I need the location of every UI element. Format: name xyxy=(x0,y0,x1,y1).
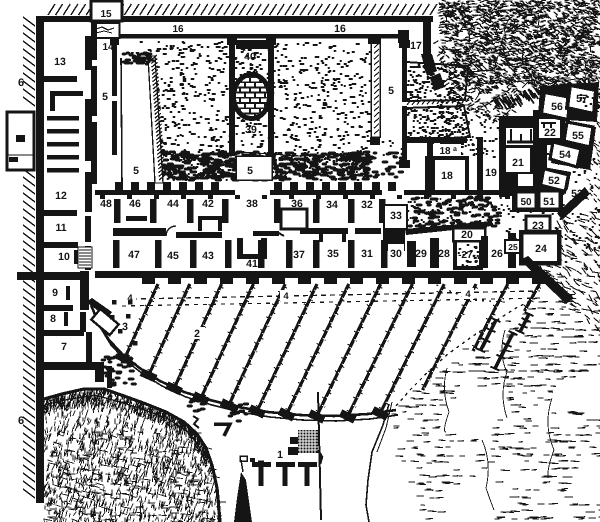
svg-text:38: 38 xyxy=(246,198,258,210)
svg-text:37: 37 xyxy=(293,249,305,261)
svg-text:4: 4 xyxy=(465,289,471,300)
svg-text:41: 41 xyxy=(246,258,258,270)
svg-text:30: 30 xyxy=(390,248,402,260)
svg-text:-27-: -27- xyxy=(458,250,476,261)
svg-text:1: 1 xyxy=(277,449,283,461)
svg-text:45: 45 xyxy=(167,250,179,262)
svg-text:24: 24 xyxy=(535,243,547,255)
svg-text:11: 11 xyxy=(55,222,66,234)
svg-text:a: a xyxy=(453,146,457,153)
svg-text:8: 8 xyxy=(50,313,56,325)
svg-text:5: 5 xyxy=(133,165,139,177)
svg-text:19: 19 xyxy=(485,167,497,179)
svg-text:7: 7 xyxy=(61,341,67,353)
svg-text:20: 20 xyxy=(461,229,473,241)
svg-text:21: 21 xyxy=(512,157,524,169)
svg-text:4: 4 xyxy=(283,291,289,302)
svg-text:15: 15 xyxy=(100,9,112,20)
svg-text:52: 52 xyxy=(548,175,560,187)
svg-text:5: 5 xyxy=(247,165,253,177)
svg-text:33: 33 xyxy=(390,210,402,222)
svg-text:34: 34 xyxy=(326,199,338,211)
svg-text:42: 42 xyxy=(202,198,214,210)
svg-text:25: 25 xyxy=(508,242,518,252)
svg-text:10: 10 xyxy=(58,251,70,263)
svg-text:26: 26 xyxy=(491,248,503,260)
svg-text:36: 36 xyxy=(291,198,303,210)
svg-text:47: 47 xyxy=(128,249,140,261)
svg-text:18: 18 xyxy=(441,170,453,182)
svg-text:32: 32 xyxy=(361,199,373,211)
svg-text:29: 29 xyxy=(415,248,427,260)
svg-text:16: 16 xyxy=(334,23,346,35)
svg-text:46: 46 xyxy=(129,198,141,210)
svg-text:16: 16 xyxy=(172,24,184,35)
svg-text:50: 50 xyxy=(520,197,532,208)
svg-text:56: 56 xyxy=(551,101,563,113)
svg-text:6: 6 xyxy=(18,415,24,427)
svg-text:43: 43 xyxy=(202,250,214,262)
svg-text:2: 2 xyxy=(194,328,200,340)
svg-text:5: 5 xyxy=(388,85,394,97)
svg-text:57: 57 xyxy=(576,93,588,105)
svg-text:35: 35 xyxy=(327,248,339,260)
svg-text:22: 22 xyxy=(544,127,556,139)
svg-text:9: 9 xyxy=(52,287,58,299)
svg-text:31: 31 xyxy=(361,248,373,260)
svg-text:55: 55 xyxy=(572,130,584,142)
svg-text:12: 12 xyxy=(55,190,67,202)
svg-text:48: 48 xyxy=(100,198,112,210)
svg-text:39: 39 xyxy=(245,124,257,136)
svg-text:6: 6 xyxy=(18,77,24,89)
svg-text:5: 5 xyxy=(102,91,108,103)
svg-text:54: 54 xyxy=(559,149,571,161)
svg-text:3: 3 xyxy=(122,321,128,333)
svg-text:17: 17 xyxy=(410,40,422,52)
svg-text:51: 51 xyxy=(543,196,555,208)
svg-text:44: 44 xyxy=(167,198,179,210)
svg-text:28: 28 xyxy=(438,248,450,260)
svg-text:18: 18 xyxy=(439,146,451,157)
svg-text:13: 13 xyxy=(54,56,66,68)
svg-text:40: 40 xyxy=(244,51,256,63)
